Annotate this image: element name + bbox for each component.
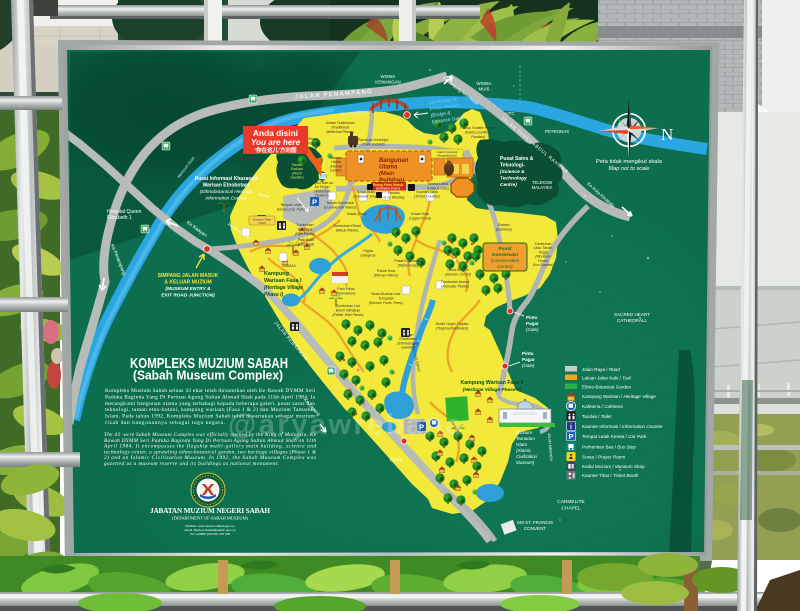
svg-text:merangkumi bangunan utama yang: merangkumi bangunan utama yang terbahagi…: [105, 401, 315, 407]
svg-text:Civilization: Civilization: [516, 454, 538, 459]
svg-text:TELEKOMMALAYSIA: TELEKOMMALAYSIA: [532, 180, 553, 190]
svg-text:(DEPARTMENT OF SABAH MUSEUM): (DEPARTMENT OF SABAH MUSEUM): [172, 516, 248, 521]
svg-text:Surau / Prayer Room: Surau / Prayer Room: [582, 455, 625, 460]
svg-text:Pagar: Pagar: [526, 321, 539, 326]
svg-text:(Tiket): (Tiket): [258, 221, 266, 225]
svg-text:Kaunter Informasi / Informati: Kaunter Informasi / Information Counter: [582, 424, 663, 429]
svg-text:Pintu: Pintu: [390, 446, 401, 451]
svg-text:Tempat LetakKereta (Car Park): Tempat LetakKereta (Car Park): [277, 203, 305, 211]
svg-text:Warisan Etnobotani: Warisan Etnobotani: [203, 183, 250, 189]
svg-text:UTC: UTC: [505, 111, 514, 116]
svg-text:TumbuhanPesawna(Dye Plants): TumbuhanPesawna(Dye Plants): [295, 223, 315, 236]
svg-text:Museum): Museum): [516, 460, 535, 465]
svg-text:Pusat Sains &: Pusat Sains &: [500, 156, 534, 162]
svg-text:Islam: Islam: [516, 442, 527, 447]
svg-text:Phase I): Phase I): [264, 292, 284, 298]
svg-text:i: i: [570, 424, 572, 431]
svg-text:Paduka Baginda Yang Di Pertuan: Paduka Baginda Yang Di Pertuan Agong Sul…: [105, 394, 316, 400]
svg-text:SACRED HEARTCATHEDRALL: SACRED HEARTCATHEDRALL: [614, 312, 650, 323]
svg-text:Jalan Raya / Road: Jalan Raya / Road: [582, 367, 620, 372]
svg-text:You are here: You are here: [251, 138, 301, 147]
svg-text:Perhentian Bas / Bus Stop: Perhentian Bas / Bus Stop: [582, 445, 636, 450]
svg-text:SIMPANG JALAN MASUK: SIMPANG JALAN MASUK: [158, 273, 219, 279]
svg-text:Orkid Borneo(Borneo Orchid): Orkid Borneo(Borneo Orchid): [445, 268, 471, 276]
svg-text:P: P: [568, 432, 573, 441]
svg-text:Pintu: Pintu: [522, 351, 534, 356]
svg-text:Pagar: Pagar: [522, 357, 535, 362]
svg-text:Centre): Centre): [497, 264, 513, 269]
svg-text:Tumbuhan Aroma(Aromatic Plants: Tumbuhan Aroma(Aromatic Plants): [441, 280, 469, 288]
svg-text:Pagar: Pagar: [390, 452, 402, 457]
svg-text:Warisan Fasa I: Warisan Fasa I: [264, 278, 302, 284]
svg-text:Map not to scale: Map not to scale: [608, 166, 649, 172]
svg-text:gazetted as a museum reserve a: gazetted as a museum reserve and its bui…: [104, 461, 279, 467]
svg-text:& KELUAR MUZIUM: & KELUAR MUZIUM: [164, 280, 211, 286]
svg-text:Teknologi-: Teknologi-: [500, 163, 525, 169]
svg-text:EXIT ROAD JUNCTION): EXIT ROAD JUNCTION): [161, 293, 215, 299]
svg-text:P: P: [312, 197, 317, 206]
svg-text:Information Centre): Information Centre): [205, 196, 247, 202]
svg-text:Anda disini: Anda disini: [253, 128, 298, 138]
svg-text:Pusat Informasi Khazanah: Pusat Informasi Khazanah: [195, 176, 258, 182]
svg-text:Bangunan: Bangunan: [379, 158, 409, 164]
svg-text:Tumbuhan Ritual(Ritual Plants): Tumbuhan Ritual(Ritual Plants): [333, 224, 360, 232]
svg-text:rizab dan bangunannya sebagai: rizab dan bangunannya sebagai tugu negar…: [105, 420, 225, 426]
svg-text:Tumbuhan LiarBoleh Dimakan(Edi: Tumbuhan LiarBoleh Dimakan(Edible Wild P…: [332, 304, 363, 317]
svg-text:(Islamic: (Islamic: [516, 448, 532, 453]
svg-text:(Heritage Village: (Heritage Village: [264, 285, 303, 291]
svg-text:(Main: (Main: [379, 171, 395, 177]
svg-text:Hutan Hujan Tropika(Tropical R: Hutan Hujan Tropika(Tropical Rainforest): [436, 322, 469, 330]
svg-text:Pusat: Pusat: [498, 246, 511, 252]
svg-text:(Science &: (Science &: [500, 169, 525, 175]
svg-text:Kereta Lama(Unique Cars): Kereta Lama(Unique Cars): [427, 182, 449, 190]
svg-text:Pameran Keretapi(Train Exhibit: Pameran Keretapi(Train Exhibit): [358, 138, 389, 147]
svg-text:(Entrance Foyer): (Entrance Foyer): [376, 186, 400, 190]
svg-text:Kolam Hulu(Upper Pond): Kolam Hulu(Upper Pond): [409, 212, 431, 220]
svg-text:Kaunter Tikat(Ticket Counter): Kaunter Tikat(Ticket Counter): [414, 190, 440, 198]
svg-text:(Ethnobotanical Heritage: (Ethnobotanical Heritage: [200, 189, 253, 195]
svg-text:Tel: (+6088) 225 033, 215 606: Tel: (+6088) 225 033, 215 606: [190, 532, 230, 536]
svg-text:Centre): Centre): [500, 182, 517, 188]
svg-text:WISMAMUIS: WISMAMUIS: [477, 81, 492, 92]
svg-text:Tamadun: Tamadun: [516, 436, 535, 441]
svg-text:(Gate): (Gate): [390, 457, 402, 462]
svg-text:Technology: Technology: [500, 176, 527, 182]
svg-text:Tandas / Toilet: Tandas / Toilet: [582, 414, 612, 419]
svg-text:@aryawrebana: @aryawrebana: [228, 409, 464, 441]
svg-text:Kedai Buku(Souvenir shop): Kedai Buku(Souvenir shop): [353, 190, 378, 198]
svg-text:Kafeteria / Cafeteria: Kafeteria / Cafeteria: [582, 404, 623, 409]
svg-text:Tempat Letak Kereta / Car Par: Tempat Letak Kereta / Car Park: [582, 434, 647, 439]
svg-text:SABATA: SABATA: [282, 264, 296, 268]
svg-text:Pintu: Pintu: [526, 315, 538, 320]
svg-text:Kaunter Tikat / Ticket Booth: Kaunter Tikat / Ticket Booth: [582, 473, 639, 478]
svg-text:N: N: [661, 125, 673, 144]
svg-text:Kampung: Kampung: [264, 271, 289, 277]
svg-text:(Conservation: (Conservation: [491, 258, 520, 263]
svg-text:PETRONAS: PETRONAS: [545, 129, 569, 134]
svg-text:Kompleks Muzium Sabah seluas 4: Kompleks Muzium Sabah seluas 43 ekar tel…: [105, 388, 316, 394]
svg-text:Pokok Kera(Pitcher Plants): Pokok Kera(Pitcher Plants): [374, 269, 399, 277]
svg-text:‘你在这儿’方向图: ‘你在这儿’方向图: [254, 146, 297, 154]
svg-text:TumbuhanLibur TanahTinggi(Mont: TumbuhanLibur TanahTinggi(MontaneForestE…: [533, 242, 554, 267]
svg-text:Taman Komersial(Commercial Pla: Taman Komersial(Commercial Plants): [324, 201, 357, 209]
svg-text:(Gate): (Gate): [526, 327, 539, 332]
svg-text:Bambu(Bamboo): Bambu(Bamboo): [496, 223, 512, 231]
svg-text:(Sabah Museum Complex): (Sabah Museum Complex): [133, 369, 283, 383]
svg-text:Katak (Yam): Katak (Yam): [347, 212, 367, 216]
svg-text:Kampung Warisan Fasa II: Kampung Warisan Fasa II: [461, 380, 524, 386]
svg-text:(Gate): (Gate): [522, 363, 535, 368]
svg-text:TamanHerba(HerbalCenter): TamanHerba(HerbalCenter): [330, 156, 342, 173]
svg-text:(Radwallahsan): (Radwallahsan): [437, 154, 457, 158]
svg-text:(Heritage Village Phase II): (Heritage Village Phase II): [463, 387, 522, 393]
svg-text:Kedai Muzium / Museum Shop: Kedai Muzium / Museum Shop: [582, 464, 645, 469]
svg-text:Rotan(Palma): Rotan(Palma): [307, 137, 320, 145]
svg-text:Laluan Jalan Kaki / Trail: Laluan Jalan Kaki / Trail: [582, 376, 632, 381]
svg-text:Ethno-Botanical Garden: Ethno-Botanical Garden: [582, 385, 631, 390]
svg-text:Peta tidak mengikut skala: Peta tidak mengikut skala: [596, 159, 663, 165]
svg-text:JABATAN MUZIUM NEGERI SABAH: JABATAN MUZIUM NEGERI SABAH: [150, 507, 270, 515]
svg-text:Utama: Utama: [379, 165, 398, 171]
svg-text:Muzium: Muzium: [516, 430, 532, 435]
svg-text:Kampung Warisan / Heritage Vil: Kampung Warisan / Heritage Village: [582, 394, 656, 399]
svg-text:Padi Bukit(Hot Padi): Padi Bukit(Hot Padi): [298, 238, 314, 246]
svg-text:(MUSEUM ENTRY &: (MUSEUM ENTRY &: [165, 286, 211, 292]
svg-text:TamanBatuan(RockGarden): TamanBatuan(RockGarden): [290, 163, 303, 180]
svg-text:Pusat Dipterokap(Dipterocarp): Pusat Dipterokap(Dipterocarp): [394, 259, 422, 267]
svg-text:Patu Pakis(Fernarium): Patu Pakis(Fernarium): [337, 287, 356, 295]
